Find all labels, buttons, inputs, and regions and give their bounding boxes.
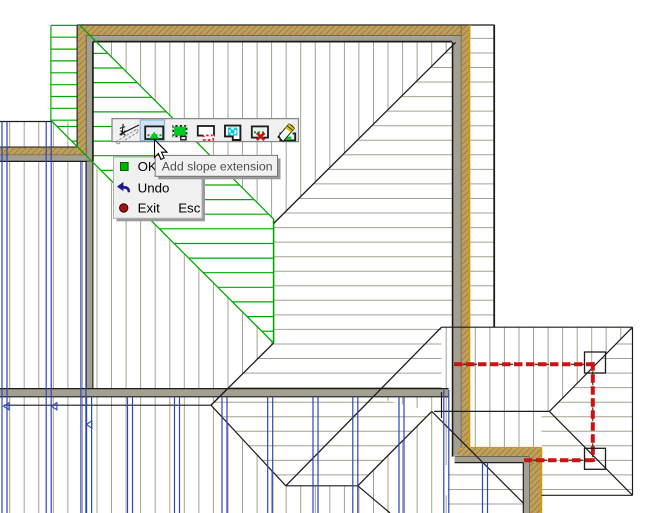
svg-text:Undo: Undo	[138, 180, 170, 195]
svg-text:Exit: Exit	[138, 201, 160, 216]
svg-text:OK: OK	[138, 159, 157, 174]
svg-text:Esc: Esc	[178, 201, 201, 216]
svg-text:Add slope extension: Add slope extension	[162, 159, 273, 173]
